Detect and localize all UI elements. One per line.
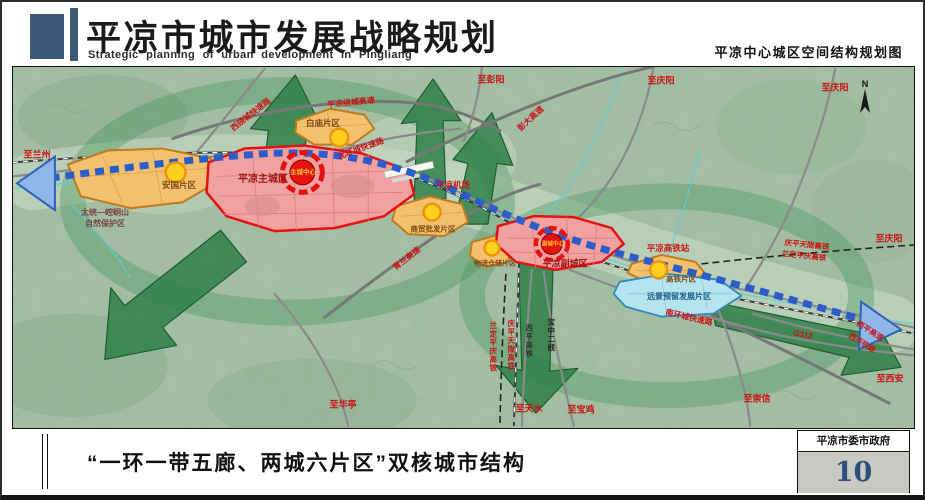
agency-name: 平凉市委市政府: [798, 431, 909, 452]
map-graphic: [13, 67, 914, 428]
title-block: 平凉市委市政府 10: [797, 430, 910, 493]
structure-caption: “一环一带五廊、两城六片区”双核城市结构: [87, 447, 526, 477]
header: 平凉市城市发展战略规划 Strategic planning of urban …: [2, 2, 923, 65]
footer: “一环一带五廊、两城六片区”双核城市结构 平凉市委市政府 10: [2, 430, 923, 495]
footer-divider-a: [42, 434, 43, 489]
map-title: 平凉中心城区空间结构规划图: [714, 42, 903, 61]
footer-divider-b: [47, 434, 48, 489]
page-subtitle: Strategic planning of urban development …: [88, 49, 412, 61]
logo-bar: [70, 8, 78, 61]
page-number: 10: [798, 452, 909, 493]
map-canvas: 至兰州 至彭阳 至庆阳 至庆阳 至庆阳 至西安 至崇信 至华亭 至天水 至宝鸡 …: [12, 66, 915, 429]
logo-block: [30, 14, 64, 59]
planning-slide: 平凉市城市发展战略规划 Strategic planning of urban …: [0, 0, 925, 500]
